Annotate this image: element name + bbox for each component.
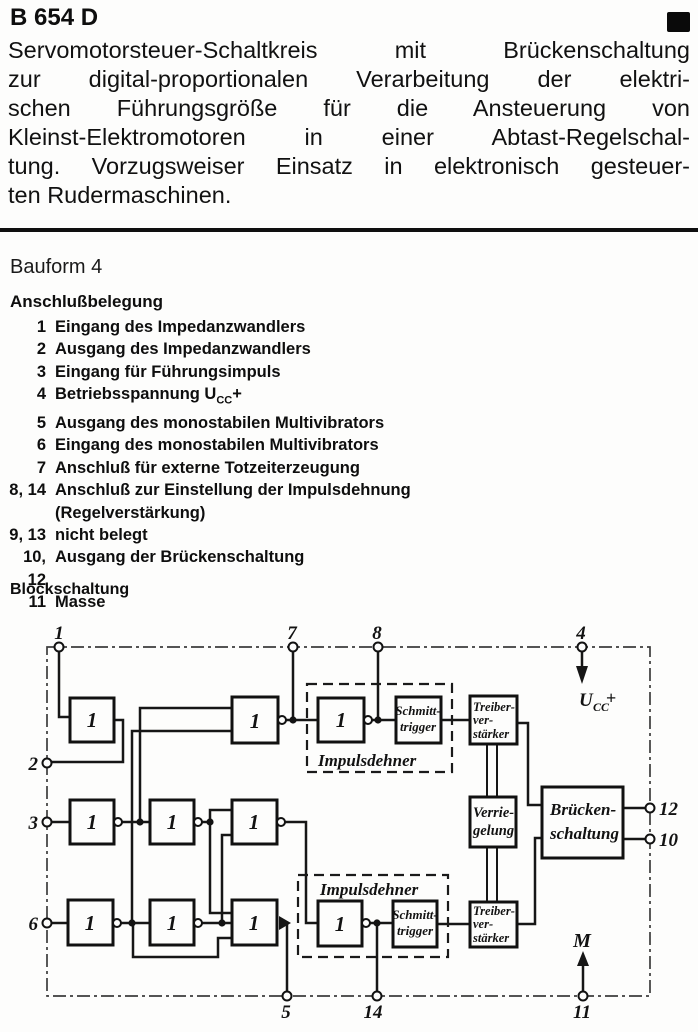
pin-row: 8, 14 Anschluß zur Einstellung der Impul… bbox=[4, 479, 644, 524]
description-line: Servomotorsteuer-Schaltkreis mit Brücken… bbox=[8, 36, 690, 65]
description-paragraph: Servomotorsteuer-Schaltkreis mit Brücken… bbox=[8, 36, 690, 210]
horizontal-divider bbox=[0, 228, 698, 232]
ucc-subscript: CC bbox=[216, 395, 232, 407]
inverter-bubble bbox=[194, 818, 202, 826]
pin10-terminal bbox=[646, 835, 655, 844]
pin-description-text2: (Regelverstärkung) bbox=[55, 502, 411, 524]
description-line: schen Führungsgröße für die Ansteuerung … bbox=[8, 94, 690, 123]
gate-label: 1 bbox=[336, 708, 347, 732]
brueckenschaltung-label: schaltung bbox=[549, 824, 619, 843]
page-title: B 654 D bbox=[10, 4, 98, 32]
gate-label: 1 bbox=[85, 911, 96, 935]
inverter-bubble bbox=[114, 818, 122, 826]
wire-gateJ-to-pin5 bbox=[283, 923, 287, 992]
inverter-bubble bbox=[364, 716, 372, 724]
pin-number: 5 bbox=[4, 412, 46, 434]
junction-dot bbox=[373, 919, 380, 926]
pin-description: Eingang für Führungsimpuls bbox=[55, 361, 281, 383]
bus-treiber1-verriegelung bbox=[487, 744, 497, 797]
junction-dot bbox=[374, 716, 381, 723]
ucc-plus: + bbox=[232, 385, 242, 403]
description-line: tung. Vorzugsweiser Einsatz in elektroni… bbox=[8, 152, 690, 181]
pin-description: Betriebsspannung UCC+ bbox=[55, 383, 242, 412]
pin-label-2: 2 bbox=[28, 754, 39, 775]
treiberverstaerker2-label: ver- bbox=[473, 917, 493, 931]
pin-label-10: 10 bbox=[659, 830, 679, 851]
pin-number: 6 bbox=[4, 434, 46, 456]
wire-gateG-to-impulsdehner2 bbox=[285, 822, 318, 923]
verriegelung-label: Verrie- bbox=[473, 805, 514, 821]
gateJ-output-arrow-icon bbox=[279, 916, 291, 930]
pin-row: 5 Ausgang des monostabilen Multivibrator… bbox=[4, 412, 644, 434]
pinout-heading: Anschlußbelegung bbox=[10, 292, 163, 312]
pin-row: 3 Eingang für Führungsimpuls bbox=[4, 361, 644, 383]
gate-label: 1 bbox=[87, 708, 98, 732]
junction-dot bbox=[136, 818, 143, 825]
pin-label-11: 11 bbox=[573, 1002, 591, 1023]
gate-boxes bbox=[68, 696, 623, 947]
block-diagram: 1 1 1 1 1 1 1 1 1 1 Schmitt- trigger Sch… bbox=[0, 600, 698, 1032]
pin-description-text: Betriebsspannung U bbox=[55, 385, 216, 403]
gate-label: 1 bbox=[249, 911, 260, 935]
verriegelung-label: gelung bbox=[472, 823, 514, 839]
bauform-label: Bauform 4 bbox=[10, 256, 102, 279]
pin-number: 1 bbox=[4, 316, 46, 338]
bus-verriegelung-treiber2 bbox=[487, 847, 497, 902]
pin-number: 7 bbox=[4, 457, 46, 479]
pin-label-12: 12 bbox=[659, 799, 679, 820]
pin-description: Eingang des monostabilen Multivibrators bbox=[55, 434, 379, 456]
wire-pin1-to-gate bbox=[59, 651, 70, 717]
pin14-terminal bbox=[373, 992, 382, 1001]
pin-description: Anschluß für externe Totzeiterzeugung bbox=[55, 457, 360, 479]
pin-description: Ausgang des monostabilen Multivibrators bbox=[55, 412, 384, 434]
gate-label: 1 bbox=[167, 911, 178, 935]
gate-label: 1 bbox=[335, 912, 346, 936]
datasheet-page: B 654 D Servomotorsteuer-Schaltkreis mit… bbox=[0, 0, 698, 1032]
pin5-terminal bbox=[283, 992, 292, 1001]
pin-row: 4 Betriebsspannung UCC+ bbox=[4, 383, 644, 412]
pin-description: Anschluß zur Einstellung der Impulsdehnu… bbox=[55, 479, 411, 524]
pin-description: Ausgang des Impedanzwandlers bbox=[55, 338, 311, 360]
pin-description: Eingang des Impedanzwandlers bbox=[55, 316, 305, 338]
ucc-arrow-down-icon bbox=[576, 666, 588, 684]
pin-description: nicht belegt bbox=[55, 524, 148, 546]
pin-number: 9, 13 bbox=[4, 524, 46, 546]
pin-row: 7 Anschluß für externe Totzeiterzeugung bbox=[4, 457, 644, 479]
gate-label: 1 bbox=[249, 810, 260, 834]
schmitt-trigger2-label: Schmitt- bbox=[392, 907, 438, 922]
wire-treiber2-to-bruecken bbox=[517, 838, 542, 924]
treiberverstaerker2-label: Treiber- bbox=[473, 904, 515, 918]
pin-row: 1 Eingang des Impedanzwandlers bbox=[4, 316, 644, 338]
pinout-list: 1 Eingang des Impedanzwandlers 2 Ausgang… bbox=[4, 316, 644, 614]
pin3-terminal bbox=[43, 818, 52, 827]
pin-number: 8, 14 bbox=[4, 479, 46, 524]
description-line: Kleinst-Elektromotoren in einer Abtast-R… bbox=[8, 123, 690, 152]
inverter-bubble bbox=[277, 818, 285, 826]
description-line: zur digital-proportionalen Verarbeitung … bbox=[8, 65, 690, 94]
treiberverstaerker1-label: stärker bbox=[472, 727, 509, 741]
gate-label: 1 bbox=[250, 709, 261, 733]
wire-treiber1-to-bruecken bbox=[517, 723, 542, 805]
pin-number: 2 bbox=[4, 338, 46, 360]
schmitt-trigger1-label: trigger bbox=[400, 719, 437, 734]
pin12-terminal bbox=[646, 804, 655, 813]
pin6-terminal bbox=[43, 919, 52, 928]
pin-label-3: 3 bbox=[28, 813, 39, 834]
gate-label: 1 bbox=[167, 810, 178, 834]
impulsdehner1-label: Impulsdehner bbox=[317, 751, 417, 770]
ucc-plus-label: + bbox=[606, 688, 616, 708]
pin-label-5: 5 bbox=[281, 1002, 291, 1023]
schmitt-trigger2-label: trigger bbox=[397, 923, 434, 938]
pin-row: 6 Eingang des monostabilen Multivibrator… bbox=[4, 434, 644, 456]
pin11-terminal bbox=[579, 992, 588, 1001]
pin-label-8: 8 bbox=[372, 623, 382, 644]
pin-label-4: 4 bbox=[575, 623, 586, 644]
junction-dot bbox=[206, 818, 213, 825]
inverter-bubble bbox=[113, 919, 121, 927]
motor-arrow-up-icon bbox=[577, 951, 589, 966]
brueckenschaltung-box bbox=[542, 787, 623, 858]
brueckenschaltung-label: Brücken- bbox=[549, 800, 616, 819]
pin2-terminal bbox=[43, 759, 52, 768]
description-line: ten Rudermaschinen. bbox=[8, 181, 690, 210]
pin-row: 2 Ausgang des Impedanzwandlers bbox=[4, 338, 644, 360]
pin-label-7: 7 bbox=[287, 623, 298, 644]
inverter-bubble bbox=[362, 919, 370, 927]
pin-row: 9, 13 nicht belegt bbox=[4, 524, 644, 546]
junction-dot bbox=[128, 919, 135, 926]
pin-number: 4 bbox=[4, 383, 46, 412]
schmitt-trigger1-label: Schmitt- bbox=[395, 703, 441, 718]
junction-dot bbox=[218, 919, 225, 926]
motor-label: M bbox=[572, 930, 592, 952]
diagram-heading: Blockschaltung bbox=[10, 581, 129, 599]
treiberverstaerker1-label: ver- bbox=[473, 713, 493, 727]
corner-marker-square bbox=[667, 12, 690, 32]
inverter-bubble bbox=[278, 716, 286, 724]
pin-number: 3 bbox=[4, 361, 46, 383]
treiberverstaerker2-label: stärker bbox=[472, 931, 509, 945]
junction-dot bbox=[289, 716, 296, 723]
inverter-bubble bbox=[194, 919, 202, 927]
pin-description-text: Anschluß zur Einstellung der Impulsdehnu… bbox=[55, 479, 411, 501]
treiberverstaerker1-label: Treiber- bbox=[473, 700, 515, 714]
wire-node-to-gateG-top bbox=[210, 810, 232, 822]
pin-label-6: 6 bbox=[29, 914, 39, 935]
impulsdehner2-label: Impulsdehner bbox=[319, 880, 419, 899]
pin-label-14: 14 bbox=[364, 1002, 383, 1023]
ucc-label: U bbox=[579, 690, 594, 711]
pin-label-1: 1 bbox=[54, 623, 64, 644]
gate-label: 1 bbox=[87, 810, 98, 834]
